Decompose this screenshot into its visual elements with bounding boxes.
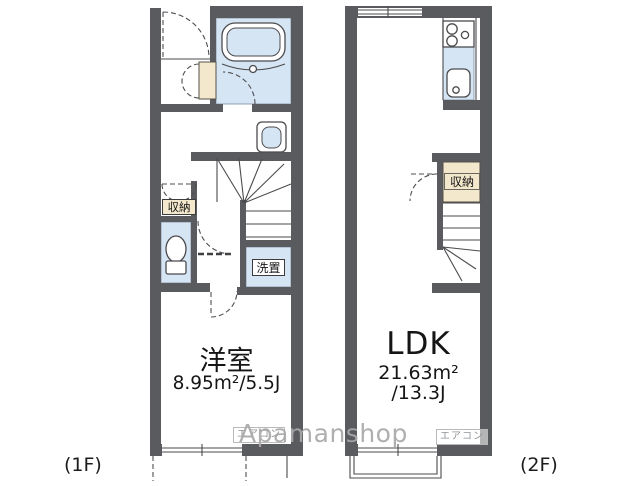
room1-area: 8.95m²/5.5J <box>150 373 303 394</box>
storage-label-2f: 収納 <box>444 173 480 190</box>
sink-drain <box>453 87 459 93</box>
floor1-tag: (1F) <box>64 454 102 476</box>
room-door-arc-1f <box>211 291 237 317</box>
porch-outline <box>153 456 287 481</box>
entrance-door-arc <box>161 12 210 59</box>
laundry-label: 洗置 <box>252 259 285 276</box>
floor2-tag: (2F) <box>520 454 558 476</box>
aircon-label-2f: エアコン <box>436 429 488 445</box>
closet-door-arc-2f <box>410 174 437 201</box>
balcony <box>350 456 441 478</box>
stove-burner <box>447 24 457 34</box>
floorplan-drawing <box>0 0 640 486</box>
watermark: Apamanshop <box>239 419 408 448</box>
stairs-1f <box>217 158 291 237</box>
storage-label-1f: 収納 <box>162 199 196 215</box>
room2-area-m2: 21.63m² <box>346 362 491 384</box>
stove-burner <box>447 36 457 46</box>
stairs-2f <box>443 216 480 281</box>
room2-area-j: /13.3J <box>346 382 491 404</box>
shoe-cabinet <box>182 62 216 99</box>
toilet-door-arc <box>198 221 231 254</box>
room2-name: LDK <box>346 326 491 362</box>
washbasin <box>257 122 286 152</box>
stove-burner <box>461 31 468 38</box>
floorplan-canvas: 収納 洗置 洋室 8.95m²/5.5J エアコン 収納 LDK 21.63m²… <box>0 0 640 486</box>
window-1f-bottom <box>162 444 242 456</box>
